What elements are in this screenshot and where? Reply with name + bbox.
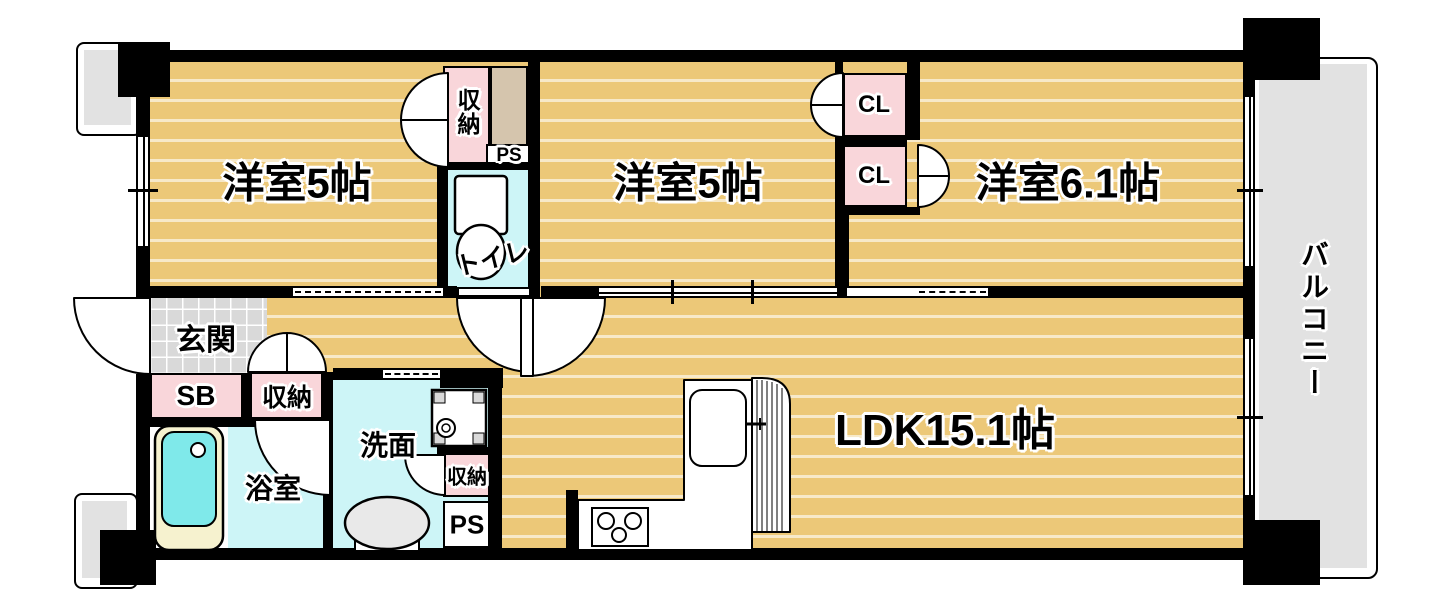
ldk-label: LDK15.1帖 (835, 394, 1055, 458)
toilet-door-swing (457, 298, 531, 372)
bath-label: 浴室 (245, 467, 301, 507)
room1-label: 洋室5帖 (222, 150, 371, 211)
stove-burner (598, 513, 614, 529)
room1-closet-label: 収納 (450, 88, 484, 136)
pan-corner (473, 392, 484, 403)
room2-label: 洋室5帖 (613, 150, 762, 211)
ldk-door-panel (521, 298, 533, 376)
room3-label: 洋室6.1帖 (976, 150, 1160, 211)
cl2-door-upper (918, 145, 949, 176)
doors-fixtures-layer (0, 0, 1438, 609)
bathtub-faucet (191, 443, 205, 457)
floorplan-canvas: 洋室5帖 洋室5帖 洋室6.1帖 LDK15.1帖 バルコニー 玄関 SB 収納… (0, 0, 1438, 609)
stove-burner (612, 528, 626, 542)
basin-icon (345, 497, 429, 549)
genkan-label: 玄関 (176, 315, 236, 359)
cl1-label: CL (858, 91, 890, 119)
washroom-closet-label: 収納 (447, 461, 487, 490)
room1-closet-door-lower (401, 120, 448, 167)
entrance-door-swing (74, 298, 150, 374)
pan-corner (434, 392, 445, 403)
hall-closet-label: 収納 (262, 378, 312, 414)
pan-drain (437, 419, 455, 437)
hall-closet-door-left (248, 333, 287, 372)
cl1-door-lower (811, 105, 843, 137)
wash-label: 洗面 (360, 424, 416, 464)
hall-closet-door-right (287, 333, 326, 372)
bathtub-icon (162, 432, 216, 526)
balcony-label: バルコニー (1293, 240, 1333, 400)
stove-burner (625, 513, 641, 529)
cl2-label: CL (858, 162, 890, 190)
kitchen-sink-icon (690, 390, 746, 466)
upper-ps-label: PS (496, 145, 521, 167)
pan-corner (473, 433, 484, 444)
kitchen-bar-counter (752, 378, 790, 532)
lower-ps-label: PS (450, 510, 485, 541)
room1-closet-door-upper (401, 73, 448, 120)
shoe-box-label: SB (177, 380, 216, 412)
ldk-door-swing (527, 298, 605, 376)
cl1-door-upper (811, 73, 843, 105)
cl2-door-lower (918, 176, 949, 207)
